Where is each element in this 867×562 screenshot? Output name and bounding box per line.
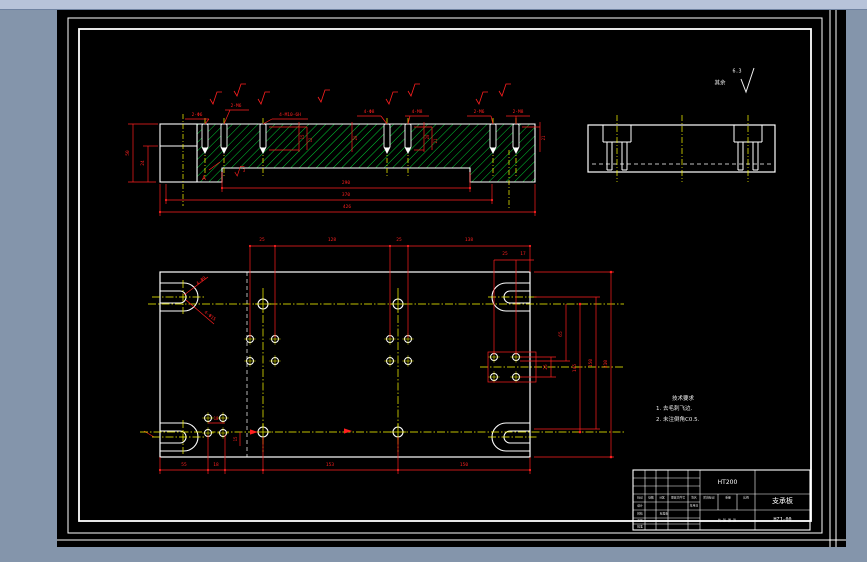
tech-notes-title: 技术要求: [672, 394, 699, 404]
tech-note-2: 2. 未注倒角C0.5.: [656, 415, 699, 425]
title-block-part-name: 支承板: [755, 492, 810, 510]
window-top-strip: [0, 0, 867, 10]
technical-notes: 技术要求 1. 去毛刺飞边. 2. 未注倒角C0.5.: [656, 394, 699, 425]
tech-note-1: 1. 去毛刺飞边.: [656, 404, 699, 414]
title-block-drawing-number: HZJ-00: [755, 510, 810, 530]
cad-viewer-window: 技术要求 1. 去毛刺飞边. 2. 未注倒角C0.5. HT200 支承板 HZ…: [0, 0, 867, 562]
drawing-sheet: [57, 9, 846, 547]
title-block-material: HT200: [700, 470, 755, 494]
